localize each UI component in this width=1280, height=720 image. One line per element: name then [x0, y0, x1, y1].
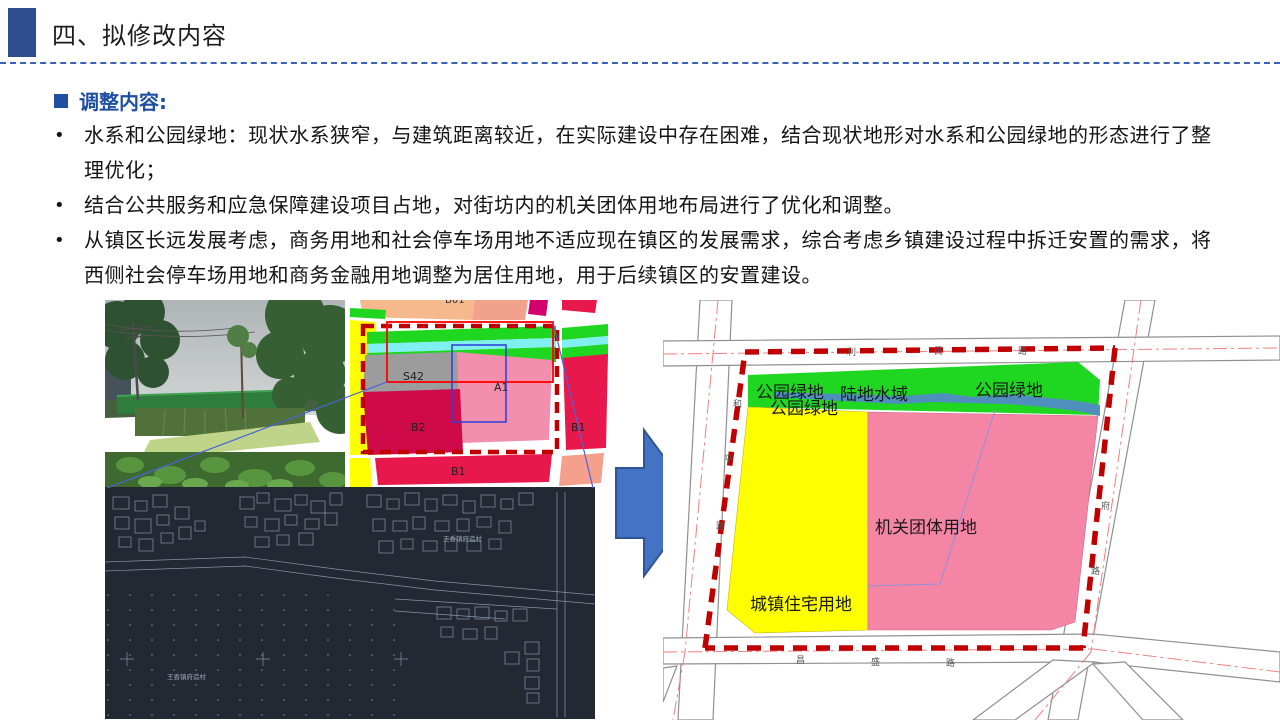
- road-name-char: 路: [716, 520, 725, 532]
- zone-label-b1: B1: [451, 465, 466, 478]
- list-item: • 从镇区长远发展考虑，商务用地和社会停车场用地不适应现在镇区的发展需求，综合考…: [54, 223, 1214, 293]
- square-bullet-icon: [54, 94, 68, 108]
- current-zoning-map: B01 S42 A1 B2 B1 B1: [350, 300, 612, 487]
- page-title: 四、拟修改内容: [52, 16, 227, 51]
- zone-label-park-green-left: 公园绿地: [770, 399, 838, 419]
- proposed-zoning-map: 公园绿地 公园绿地 陆地水域 公园绿地 城镇住宅用地 机关团体用地 利 民 路 …: [663, 300, 1280, 720]
- road-name-char: 路: [1091, 565, 1100, 577]
- slide: 四、拟修改内容 调整内容: • 水系和公园绿地：现状水系狭窄，与建筑距离较近，在…: [0, 0, 1280, 720]
- cad-survey-map: 王香镇府造村 王香镇府造村: [105, 487, 595, 719]
- road-name-char: 路: [946, 657, 955, 669]
- title-divider: [0, 62, 1280, 64]
- road-name-char: 府: [1101, 500, 1110, 512]
- road-name-char: 昌: [796, 655, 805, 666]
- site-photo: [105, 300, 345, 487]
- section-heading: 调整内容:: [54, 86, 167, 115]
- list-item: • 水系和公园绿地：现状水系狭窄，与建筑距离较近，在实际建设中存在困难，结合现状…: [54, 118, 1214, 188]
- zone-label-water: 陆地水域: [840, 385, 908, 405]
- road-name-char: 民: [934, 346, 943, 357]
- bullet-icon: •: [54, 188, 84, 223]
- bullet-text: 结合公共服务和应急保障建设项目占地，对街坊内的机关团体用地布局进行了优化和调整。: [84, 188, 1214, 223]
- bullet-icon: •: [54, 223, 84, 293]
- clipped-block-label: B01: [445, 300, 465, 306]
- zone-label-park-green-right: 公园绿地: [975, 381, 1043, 401]
- road-name-char: 和: [733, 399, 742, 410]
- road-name-char: 平: [724, 454, 733, 465]
- zone-label-residential: 城镇住宅用地: [750, 595, 852, 615]
- section-heading-label: 调整内容:: [79, 86, 167, 115]
- bullet-text: 从镇区长远发展考虑，商务用地和社会停车场用地不适应现在镇区的发展需求，综合考虑乡…: [84, 223, 1214, 293]
- bullet-icon: •: [54, 118, 84, 188]
- zone-label-s42: S42: [403, 370, 424, 383]
- village-label: 王香镇府造村: [167, 672, 207, 681]
- road-name-char: 利: [847, 346, 856, 358]
- bullet-text: 水系和公园绿地：现状水系狭窄，与建筑距离较近，在实际建设中存在困难，结合现状地形…: [84, 118, 1214, 188]
- bullet-list: • 水系和公园绿地：现状水系狭窄，与建筑距离较近，在实际建设中存在困难，结合现状…: [54, 118, 1214, 293]
- village-label-right: 王香镇府造村: [443, 534, 483, 543]
- zone-label-b2: B2: [411, 421, 426, 434]
- title-accent-bar: [8, 8, 36, 57]
- road-name-char: 路: [1018, 345, 1027, 357]
- list-item: • 结合公共服务和应急保障建设项目占地，对街坊内的机关团体用地布局进行了优化和调…: [54, 188, 1214, 223]
- zone-label-government: 机关团体用地: [875, 518, 977, 538]
- zone-label-b1-right: B1: [571, 421, 586, 434]
- road-name-char: 盛: [871, 656, 880, 668]
